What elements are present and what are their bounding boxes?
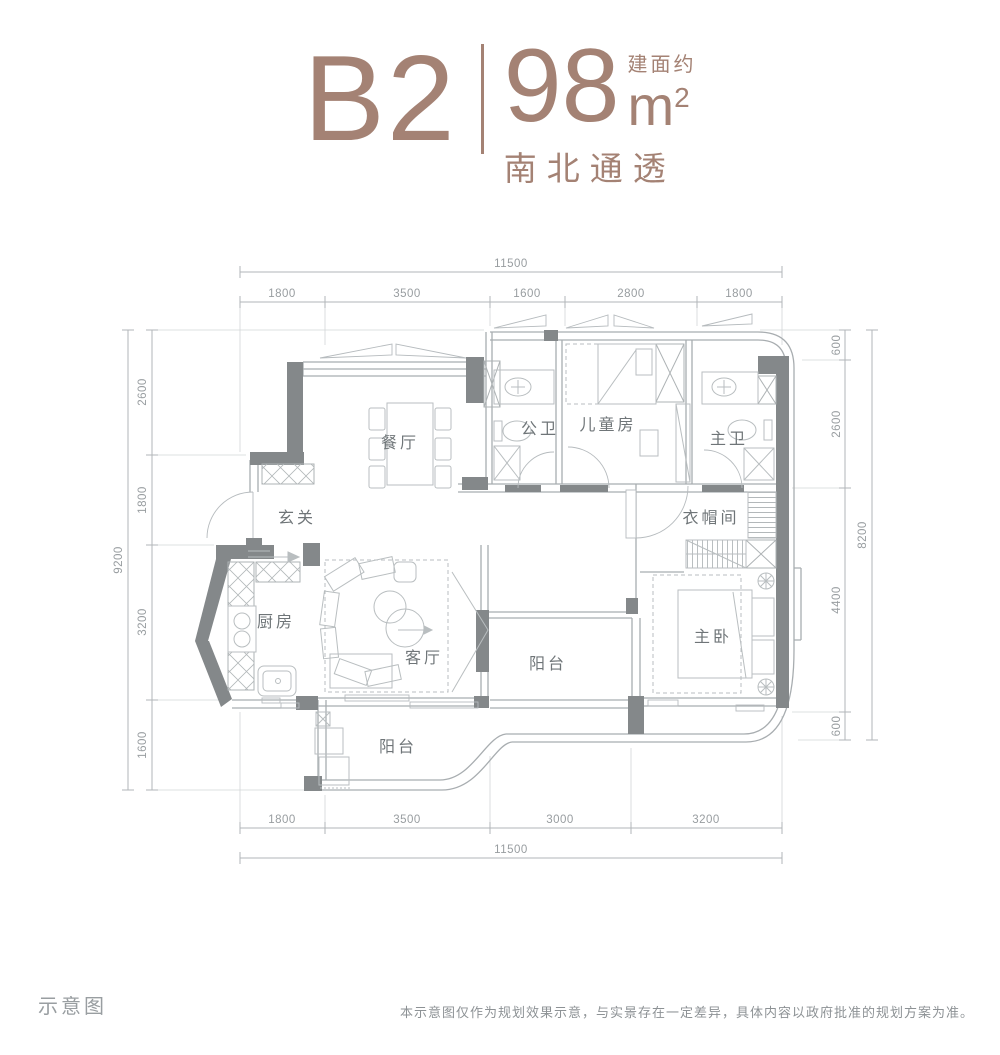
wall-segment: [776, 356, 789, 708]
wall-corridor-balcony: [488, 612, 632, 618]
wall-balcony-center-bottom: [490, 700, 628, 708]
sash-icon: [566, 315, 608, 328]
direction-arrowhead: [424, 626, 432, 634]
dim-label: 4400: [831, 586, 843, 614]
wall-segment: [462, 477, 488, 490]
room-label-master-bedroom: 主卧: [694, 628, 732, 646]
wall-segment: [626, 598, 638, 614]
window-sashes: [320, 314, 752, 358]
vanity: [702, 372, 758, 404]
dim-label: 1800: [137, 486, 149, 514]
door-arc-kids-room: [568, 447, 609, 488]
dim-label: 2600: [831, 410, 843, 438]
wall-segment: [250, 452, 304, 465]
wall-top-block: [490, 332, 794, 368]
pillow: [636, 349, 652, 375]
floorplan-page: B2 98 建面约 m2 南北通透: [0, 0, 1000, 1055]
washer: [315, 728, 343, 754]
shaft-box: [746, 540, 776, 568]
bath-master-fixtures: [702, 372, 774, 480]
wall-segment: [195, 641, 232, 707]
cloakroom-door: [626, 486, 688, 538]
washer: [319, 757, 349, 785]
toilet-tank: [494, 421, 502, 441]
dim-label: 600: [831, 716, 843, 737]
kids-bed: [598, 344, 656, 404]
wall-segment: [303, 543, 320, 566]
window-dining: [303, 332, 492, 376]
kids-room-furniture: [566, 344, 690, 482]
dim-label: 1800: [268, 814, 296, 826]
sash-icon: [494, 315, 546, 328]
dim-label: 3000: [546, 814, 574, 826]
sash-icon: [614, 315, 654, 328]
room-label-bath-master: 主卫: [710, 430, 748, 448]
pillow: [752, 640, 774, 674]
living-room-set: [320, 557, 488, 692]
pillow: [752, 598, 774, 636]
shower: [744, 448, 774, 480]
wall-segment: [466, 357, 484, 403]
dim-label: 2600: [137, 378, 149, 406]
disclaimer-text: 本示意图仅作为规划效果示意，与实景存在一定差异，具体内容以政府批准的规划方案为准…: [400, 1002, 974, 1021]
ceiling-fan-symbol: [758, 679, 774, 695]
toilet-tank: [764, 420, 772, 440]
wall-segment: [195, 559, 231, 641]
wall-segment: [758, 356, 776, 374]
floor-plan: 11500 1800 3500 1600 2800 1800 1800 3500…: [0, 0, 1000, 1055]
room-label-cloakroom: 衣帽间: [682, 509, 739, 527]
door-sill: [505, 485, 541, 492]
shaft-box: [656, 344, 684, 402]
dim-label: 9200: [113, 546, 125, 574]
dim-label: 1800: [725, 288, 753, 300]
wall-segment: [544, 330, 558, 341]
room-labels: 餐厅 玄关 厨房 客厅 阳台 阳台 公卫 儿童房 主卫 衣帽间 主卧: [257, 415, 748, 756]
dim-label: 3500: [393, 814, 421, 826]
room-label-living: 客厅: [405, 649, 443, 667]
wall-segment: [628, 696, 644, 734]
shaft-box: [758, 376, 776, 404]
dim-label: 3200: [137, 608, 149, 636]
dim-label: 3200: [692, 814, 720, 826]
dim-label: 2800: [617, 288, 645, 300]
dim-label: 1800: [268, 288, 296, 300]
ceiling-fan-symbol: [758, 573, 774, 589]
room-label-balcony-south: 阳台: [379, 738, 417, 756]
kitchen-counter: [256, 562, 300, 582]
wall-segment: [476, 610, 489, 672]
room-label-dining: 餐厅: [381, 434, 419, 452]
sash-icon: [702, 314, 752, 326]
room-label-kids-room: 儿童房: [579, 415, 636, 434]
door-sill: [702, 485, 744, 492]
room-label-balcony-center: 阳台: [529, 655, 567, 673]
dim-label: 11500: [494, 258, 528, 270]
wall-segment: [287, 362, 303, 453]
room-label-entry: 玄关: [278, 509, 316, 527]
sash-icon: [396, 344, 466, 358]
shoe-cabinet: [262, 464, 314, 484]
dim-label: 1600: [513, 288, 541, 300]
window-master-bay: [794, 568, 801, 640]
plan-caption: 示意图: [38, 990, 107, 1019]
door-arc-bath-public: [518, 452, 554, 488]
desk: [640, 430, 658, 456]
dim-label: 8200: [857, 521, 869, 549]
wall-bath-divider: [556, 340, 562, 484]
door-arc-bath-master: [704, 450, 742, 488]
sash-icon: [320, 344, 392, 358]
wall-master-balcony: [632, 618, 640, 698]
shower: [494, 446, 520, 480]
wardrobe: [748, 492, 776, 538]
room-label-kitchen: 厨房: [257, 613, 295, 631]
dim-label: 600: [831, 335, 843, 356]
room-label-bath-public: 公卫: [521, 421, 559, 438]
door-sill: [560, 485, 608, 492]
dim-label: 3500: [393, 288, 421, 300]
dim-label: 1600: [137, 731, 149, 759]
entry-door: [207, 492, 253, 538]
dim-label: 11500: [494, 844, 528, 856]
